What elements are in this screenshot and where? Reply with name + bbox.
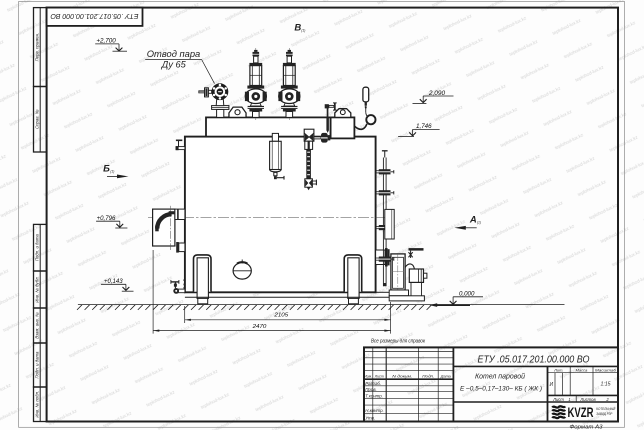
svg-text:Перв. примен.: Перв. примен. xyxy=(35,33,40,62)
svg-text:Лист: Лист xyxy=(552,397,564,402)
svg-text:(1): (1) xyxy=(301,29,305,33)
svg-text:Котел паровой: Котел паровой xyxy=(475,372,525,380)
svg-text:2105: 2105 xyxy=(273,313,289,319)
svg-text:+0,796: +0,796 xyxy=(97,215,116,222)
svg-text:Все размеры для справок: Все размеры для справок xyxy=(371,339,425,345)
svg-text:+2,700: +2,700 xyxy=(96,38,116,45)
svg-text:Инв. № дубл.: Инв. № дубл. xyxy=(35,276,40,302)
svg-text:1:15: 1:15 xyxy=(600,381,610,387)
svg-text:Е –0,5–0,17–130– КБ ( ЖК ): Е –0,5–0,17–130– КБ ( ЖК ) xyxy=(460,386,542,393)
svg-text:Дата: Дата xyxy=(440,374,452,379)
svg-text:ЕТУ .05.017.201.00.000 ВО: ЕТУ .05.017.201.00.000 ВО xyxy=(50,12,138,21)
svg-text:Лит.: Лит. xyxy=(553,368,563,373)
svg-text:N докум.: N докум. xyxy=(392,374,412,379)
svg-text:Т.контр.: Т.контр. xyxy=(365,393,383,398)
svg-text:Справ. №: Справ. № xyxy=(35,109,40,129)
svg-text:+0,143: +0,143 xyxy=(104,278,123,285)
svg-text:Н.контр.: Н.контр. xyxy=(365,408,384,413)
svg-text:0,000: 0,000 xyxy=(459,291,475,298)
svg-text:Подп. и дата: Подп. и дата xyxy=(35,234,40,262)
svg-text:2,090: 2,090 xyxy=(428,90,446,97)
svg-text:Пров.: Пров. xyxy=(365,387,377,392)
svg-text:1,746: 1,746 xyxy=(416,123,432,130)
svg-text:Отвод пара: Отвод пара xyxy=(147,49,201,59)
svg-text:И: И xyxy=(550,382,554,388)
svg-text:Масса: Масса xyxy=(576,368,589,373)
svg-text:Б: Б xyxy=(103,164,110,175)
svg-text:Утв.: Утв. xyxy=(365,415,375,420)
svg-text:А: А xyxy=(469,214,477,225)
svg-text:(1): (1) xyxy=(110,170,114,174)
svg-text:Разраб.: Разраб. xyxy=(365,381,381,386)
svg-text:Изм.: Изм. xyxy=(364,374,372,379)
svg-text:Масштаб: Масштаб xyxy=(595,368,617,373)
svg-text:Подп. и дата: Подп. и дата xyxy=(35,351,40,379)
svg-text:KVZR: KVZR xyxy=(568,405,594,420)
svg-text:Лист: Лист xyxy=(374,374,384,379)
svg-text:КОТЕЛЬНЫЙ: КОТЕЛЬНЫЙ xyxy=(596,407,615,411)
svg-text:ЕТУ .05.017.201.00.000 ВО: ЕТУ .05.017.201.00.000 ВО xyxy=(478,353,590,365)
svg-text:Формат А3: Формат А3 xyxy=(570,425,604,430)
svg-text:1: 1 xyxy=(568,397,570,402)
svg-text:Ду 65: Ду 65 xyxy=(161,60,187,70)
svg-text:ЗАВОД РЗР: ЗАВОД РЗР xyxy=(596,412,612,416)
svg-text:Подп.: Подп. xyxy=(422,374,434,379)
svg-text:Инв. № подл.: Инв. № подл. xyxy=(35,391,40,418)
svg-text:Взам. инв. №: Взам. инв. № xyxy=(35,312,40,339)
svg-text:2470: 2470 xyxy=(251,324,267,330)
svg-text:Листов: Листов xyxy=(579,397,596,402)
svg-text:(1): (1) xyxy=(477,220,481,224)
